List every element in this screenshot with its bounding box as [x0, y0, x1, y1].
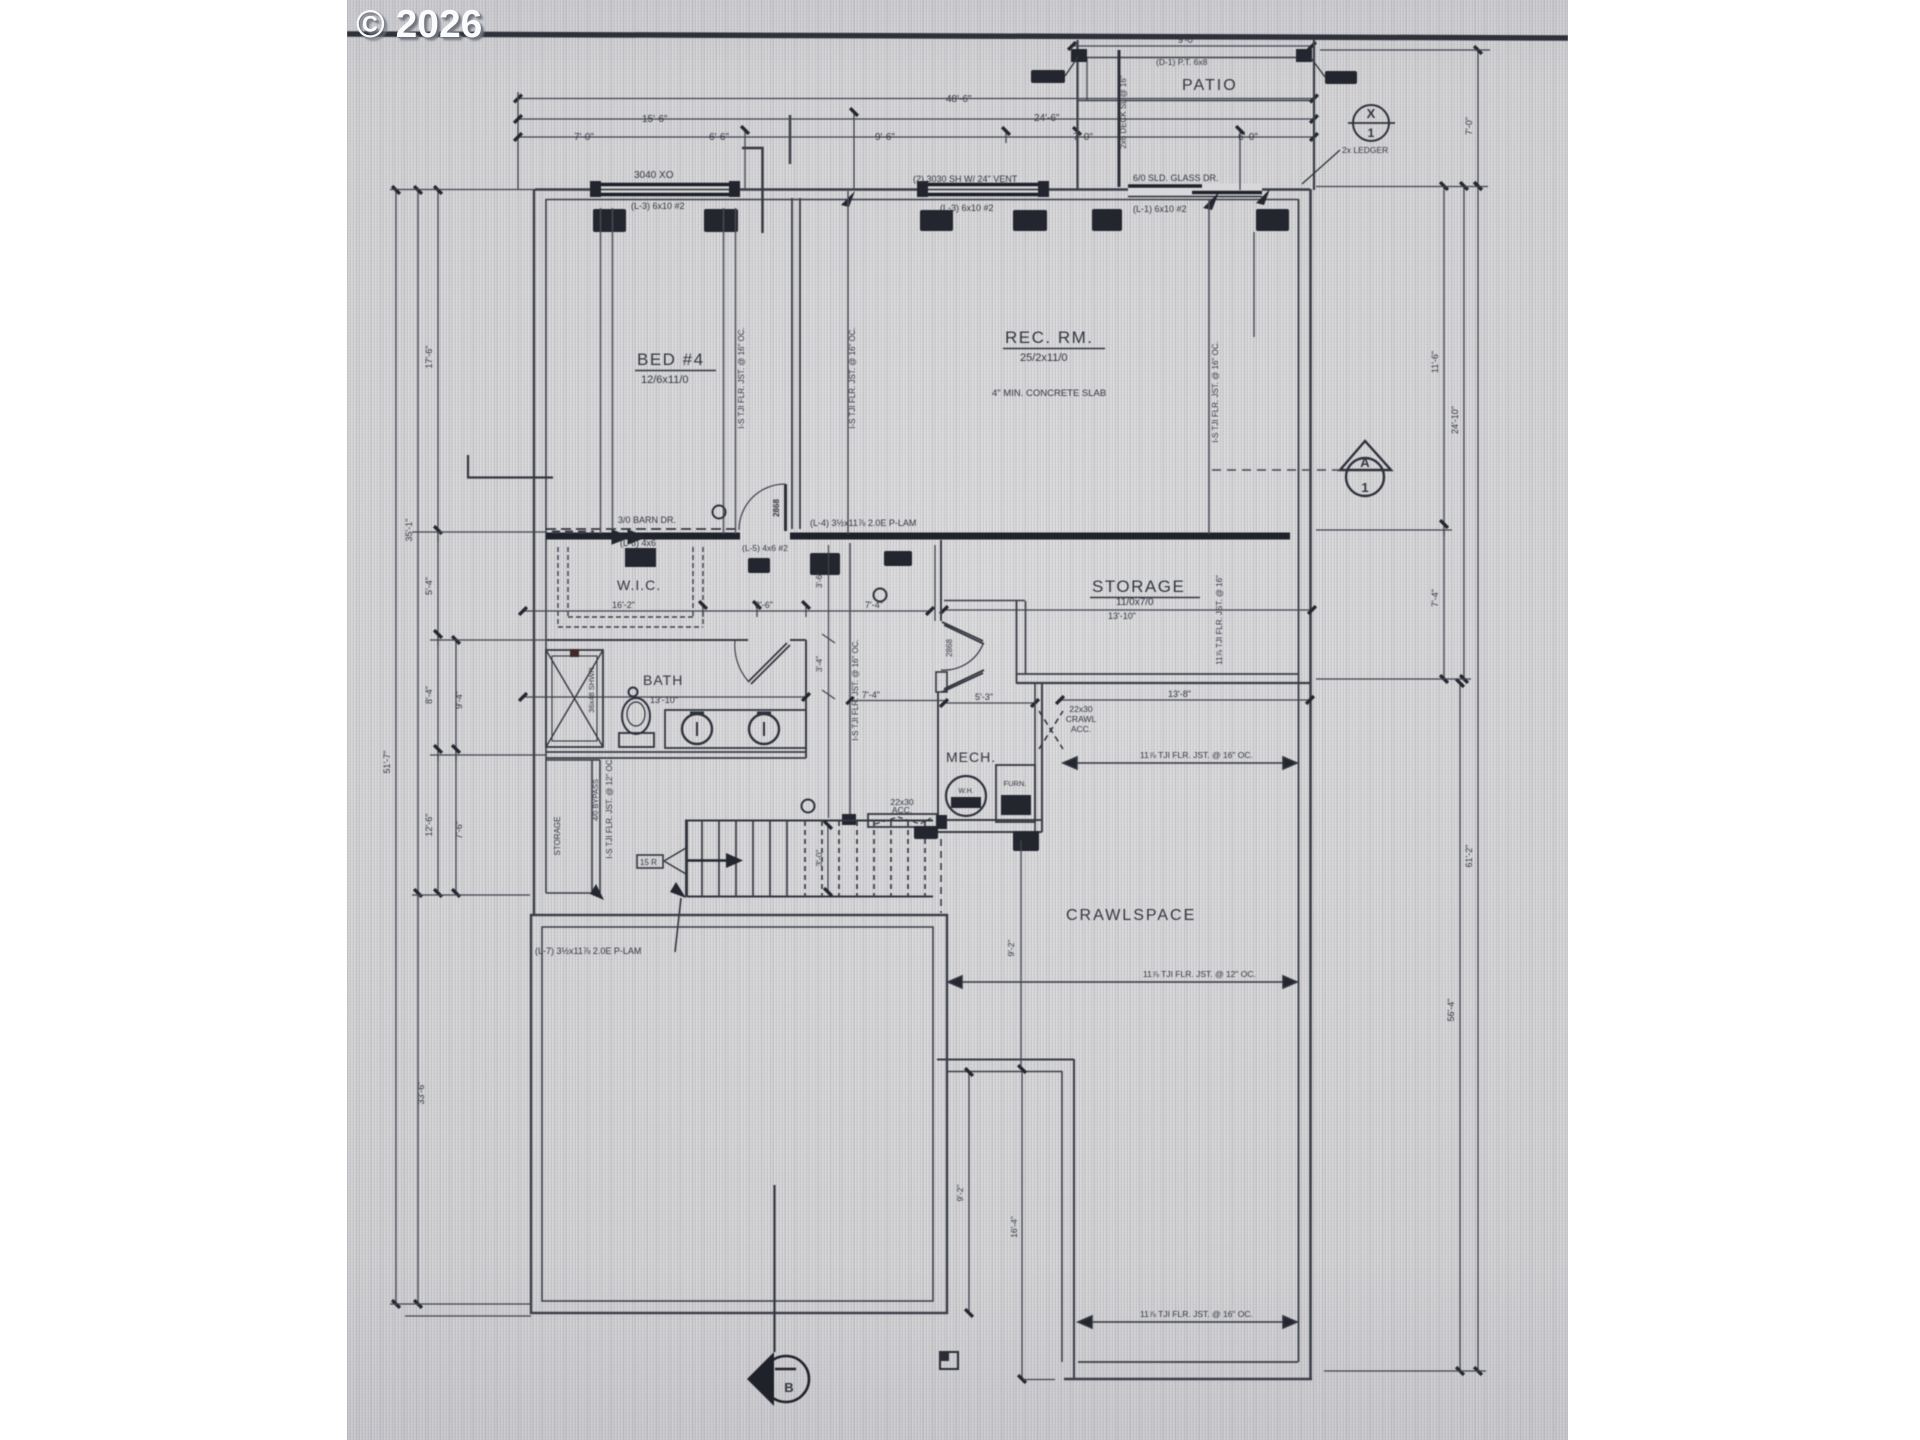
svg-text:3/0 BARN DR.: 3/0 BARN DR.: [618, 515, 676, 525]
svg-text:33'-6": 33'-6": [416, 1082, 426, 1105]
svg-text:9'-2": 9'-2": [955, 1185, 965, 1202]
svg-text:35'-1": 35'-1": [404, 519, 414, 542]
svg-text:16'-4": 16'-4": [1009, 1216, 1019, 1238]
svg-text:36x48 SHWR: 36x48 SHWR: [587, 667, 596, 713]
svg-text:W.I.C.: W.I.C.: [617, 577, 661, 593]
svg-text:48'-6": 48'-6": [946, 94, 972, 105]
svg-text:(L-4) 3½x11⅞ 2.0E P-LAM: (L-4) 3½x11⅞ 2.0E P-LAM: [810, 518, 916, 528]
svg-text:3'-6": 3'-6": [755, 600, 773, 610]
svg-text:56'-4": 56'-4": [1446, 999, 1456, 1022]
svg-text:6'-6": 6'-6": [709, 132, 729, 143]
svg-text:11/0x7/0: 11/0x7/0: [1116, 597, 1154, 608]
svg-text:2868: 2868: [945, 639, 954, 657]
svg-text:24'-10": 24'-10": [1450, 406, 1460, 434]
svg-text:8'-4": 8'-4": [424, 686, 434, 704]
svg-text:(L-7) 3½x11⅞ 2.0E P-LAM: (L-7) 3½x11⅞ 2.0E P-LAM: [535, 946, 641, 956]
svg-text:22x30: 22x30: [1069, 704, 1092, 714]
svg-text:24'-6": 24'-6": [1034, 113, 1060, 124]
svg-text:MECH.: MECH.: [946, 749, 996, 765]
svg-text:6'-0": 6'-0": [1238, 132, 1258, 143]
svg-text:11⅞ TJI FLR. JST. @ 12" OC.: 11⅞ TJI FLR. JST. @ 12" OC.: [1143, 969, 1256, 979]
svg-text:17'-6": 17'-6": [424, 346, 434, 369]
svg-text:51'-7": 51'-7": [382, 751, 392, 774]
svg-text:9'-0": 9'-0": [1178, 35, 1196, 45]
svg-text:25/2x11/0: 25/2x11/0: [1020, 352, 1068, 364]
svg-text:11⅞ TJI FLR. JST. @ 16" OC.: 11⅞ TJI FLR. JST. @ 16" OC.: [1140, 1309, 1253, 1319]
svg-text:9'-4": 9'-4": [454, 691, 464, 709]
svg-text:16'-2": 16'-2": [612, 600, 635, 610]
svg-text:REC. RM.: REC. RM.: [1005, 328, 1094, 347]
svg-text:4/0 BYPASS: 4/0 BYPASS: [591, 779, 600, 821]
svg-text:15 R: 15 R: [640, 858, 657, 867]
svg-text:A: A: [1360, 455, 1370, 470]
svg-text:X: X: [1367, 106, 1376, 121]
svg-text:7'-0": 7'-0": [574, 132, 594, 143]
svg-text:(L-5) 4x6 #2: (L-5) 4x6 #2: [742, 543, 788, 553]
svg-text:BATH: BATH: [643, 672, 683, 688]
svg-text:13'-8": 13'-8": [1168, 689, 1191, 699]
svg-text:3'-4": 3'-4": [815, 656, 824, 672]
svg-text:7'-4": 7'-4": [862, 690, 880, 700]
svg-text:9'-2": 9'-2": [1006, 940, 1016, 957]
svg-text:W.H.: W.H.: [958, 788, 973, 795]
svg-text:(2) 3030 SH W/ 24" VENT: (2) 3030 SH W/ 24" VENT: [913, 174, 1018, 184]
svg-text:BED #4: BED #4: [637, 350, 705, 369]
svg-text:I-S TJI FLR. JST. @ 16" OC.: I-S TJI FLR. JST. @ 16" OC.: [848, 327, 857, 429]
svg-text:9'-6": 9'-6": [875, 132, 895, 143]
svg-text:ACC.: ACC.: [892, 805, 912, 815]
svg-text:2x LEDGER: 2x LEDGER: [1342, 145, 1388, 155]
svg-text:7'-0": 7'-0": [1073, 132, 1093, 143]
svg-text:11⅞ TJI FLR. JST. @ 16": 11⅞ TJI FLR. JST. @ 16": [1215, 575, 1224, 665]
svg-text:3040 XO: 3040 XO: [634, 170, 674, 181]
svg-text:15'-6": 15'-6": [642, 114, 668, 125]
svg-text:5'-3": 5'-3": [975, 692, 993, 702]
svg-text:12'-6": 12'-6": [424, 814, 434, 837]
svg-text:I-S TJI FLR. JST. @ 16" OC.: I-S TJI FLR. JST. @ 16" OC.: [737, 327, 746, 429]
svg-text:5'-4": 5'-4": [424, 577, 434, 595]
svg-text:1: 1: [1361, 480, 1368, 495]
svg-text:12/6x11/0: 12/6x11/0: [641, 374, 689, 386]
svg-text:1: 1: [1368, 126, 1375, 140]
svg-text:CRAWLSPACE: CRAWLSPACE: [1066, 907, 1196, 924]
svg-text:2x6 DECK SL @ 16": 2x6 DECK SL @ 16": [1119, 75, 1128, 149]
svg-text:(L-1) 6x10 #2: (L-1) 6x10 #2: [1133, 204, 1187, 214]
svg-text:CRAWL: CRAWL: [1066, 714, 1097, 724]
svg-text:7'-4": 7'-4": [1430, 589, 1440, 607]
svg-text:2868: 2868: [772, 499, 781, 517]
svg-text:(L-3) 6x10 #2: (L-3) 6x10 #2: [631, 201, 685, 211]
svg-text:B: B: [784, 1380, 793, 1395]
svg-text:I-S TJI FLR. JST. @ 16" OC.: I-S TJI FLR. JST. @ 16" OC.: [1211, 341, 1220, 443]
svg-text:13'-10": 13'-10": [650, 695, 678, 705]
svg-text:PATIO: PATIO: [1182, 77, 1238, 94]
svg-text:7'-6": 7'-6": [454, 821, 464, 839]
svg-text:11'-6": 11'-6": [1430, 351, 1440, 373]
svg-text:4" MIN. CONCRETE SLAB: 4" MIN. CONCRETE SLAB: [992, 388, 1106, 399]
svg-text:11⅞ TJI FLR. JST. @ 16" OC.: 11⅞ TJI FLR. JST. @ 16" OC.: [1140, 750, 1253, 760]
svg-text:(D-1) P.T. 6x8: (D-1) P.T. 6x8: [1156, 57, 1208, 67]
svg-text:FURN.: FURN.: [1004, 779, 1027, 788]
svg-text:6/0 SLD. GLASS DR.: 6/0 SLD. GLASS DR.: [1133, 173, 1219, 183]
svg-text:61'-2": 61'-2": [1464, 845, 1474, 868]
svg-text:7'-0": 7'-0": [1464, 117, 1474, 135]
svg-text:3'-0": 3'-0": [814, 850, 824, 867]
svg-text:I-S TJI FLR. JST. @ 16" OC.: I-S TJI FLR. JST. @ 16" OC.: [851, 639, 860, 741]
svg-text:I-S TJI FLR. JST. @ 12" OC.: I-S TJI FLR. JST. @ 12" OC.: [605, 757, 614, 859]
svg-text:ACC.: ACC.: [1071, 724, 1091, 734]
svg-text:13'-10": 13'-10": [1108, 611, 1136, 621]
svg-text:STORAGE: STORAGE: [553, 817, 562, 856]
svg-text:3'-6": 3'-6": [815, 572, 824, 588]
svg-text:STORAGE: STORAGE: [1092, 577, 1185, 596]
svg-text:(L-6) 4x6: (L-6) 4x6: [620, 538, 656, 548]
